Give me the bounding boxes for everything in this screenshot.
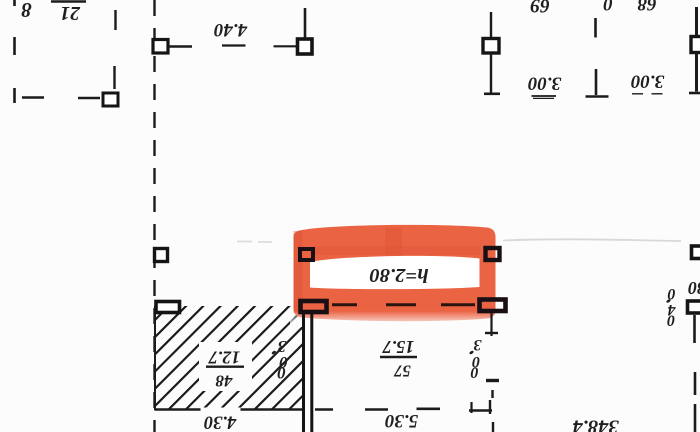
svg-text:57: 57	[394, 362, 411, 381]
svg-text:21: 21	[60, 2, 81, 24]
svg-text:0: 0	[603, 0, 613, 14]
svg-text:348.4: 348.4	[572, 415, 619, 432]
svg-text:8: 8	[21, 0, 32, 22]
svg-text:15.7: 15.7	[382, 337, 415, 357]
svg-text:12.7: 12.7	[208, 347, 241, 367]
svg-text:0: 0	[277, 364, 286, 383]
svg-text:0: 0	[667, 311, 675, 328]
svg-text:68: 68	[637, 0, 657, 14]
svg-text:5.30: 5.30	[384, 410, 418, 431]
svg-text:69: 69	[530, 0, 550, 16]
svg-text:3.00: 3.00	[527, 73, 562, 94]
svg-text:4.30: 4.30	[204, 411, 237, 431]
svg-text:0: 0	[668, 285, 676, 302]
svg-text:h=2.80: h=2.80	[370, 264, 429, 286]
svg-text:80: 80	[688, 278, 700, 298]
svg-text:4.40: 4.40	[213, 19, 248, 40]
svg-text:3: 3	[474, 336, 483, 353]
svg-text:48: 48	[215, 372, 234, 391]
svg-text:3.00: 3.00	[630, 71, 665, 92]
svg-text:0: 0	[471, 363, 479, 380]
